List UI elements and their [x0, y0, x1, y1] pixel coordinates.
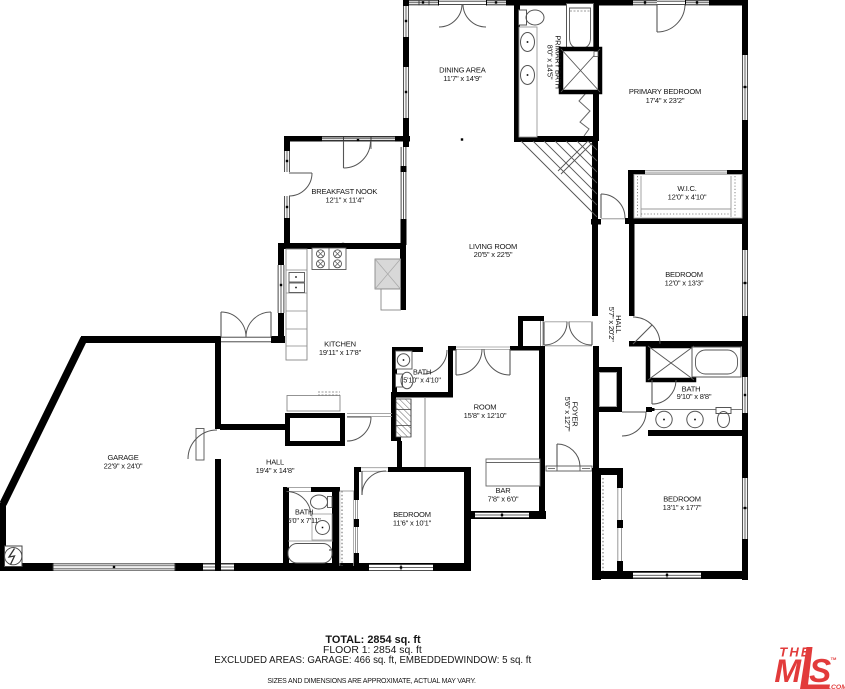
svg-text:15'8" x 12'10": 15'8" x 12'10": [464, 411, 507, 420]
svg-text:7'8" x 6'0": 7'8" x 6'0": [488, 494, 519, 503]
svg-text:5'10" x 4'10": 5'10" x 4'10": [403, 375, 441, 384]
svg-text:11'7" x 14'9": 11'7" x 14'9": [443, 74, 482, 83]
svg-text:EXCLUDED AREAS: GARAGE: 466 sq: EXCLUDED AREAS: GARAGE: 466 sq. ft, EMBE…: [214, 655, 531, 666]
svg-text:22'9" x 24'0": 22'9" x 24'0": [104, 462, 143, 471]
svg-text:12'1" x 11'4": 12'1" x 11'4": [325, 195, 364, 204]
svg-text:5'6" x 12'7": 5'6" x 12'7": [563, 397, 572, 432]
svg-text:S: S: [809, 652, 831, 689]
svg-text:9'10" x 8'8": 9'10" x 8'8": [677, 392, 712, 401]
svg-text:20'5" x 22'5": 20'5" x 22'5": [474, 250, 513, 259]
svg-text:8'0" x 14'5": 8'0" x 14'5": [546, 45, 555, 80]
svg-text:17'4" x 23'2": 17'4" x 23'2": [646, 96, 685, 105]
svg-text:SIZES AND DIMENSIONS ARE APPRO: SIZES AND DIMENSIONS ARE APPROXIMATE, AC…: [267, 678, 476, 685]
svg-text:5'7" x 20'2": 5'7" x 20'2": [607, 307, 616, 342]
svg-text:19'4" x 14'8": 19'4" x 14'8": [256, 466, 295, 475]
svg-text:5'0" x 7'11": 5'0" x 7'11": [287, 516, 321, 525]
svg-text:13'1" x 17'7": 13'1" x 17'7": [663, 503, 702, 512]
svg-text:12'0" x 4'10": 12'0" x 4'10": [668, 193, 707, 202]
svg-text:19'11" x 17'8": 19'11" x 17'8": [319, 348, 362, 357]
svg-text:TM: TM: [831, 656, 837, 661]
svg-text:12'0" x 13'3": 12'0" x 13'3": [665, 279, 704, 288]
svg-text:11'6" x 10'1": 11'6" x 10'1": [393, 519, 432, 528]
svg-text:PRIMARY BEDROOM: PRIMARY BEDROOM: [629, 87, 701, 96]
svg-text:M: M: [774, 653, 802, 689]
svg-text:.COM: .COM: [829, 684, 845, 689]
